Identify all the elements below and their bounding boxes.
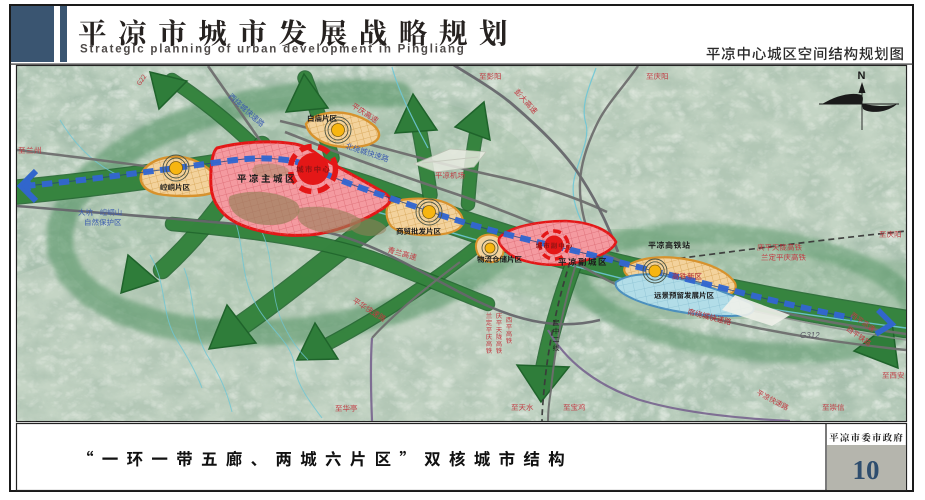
svg-text:10: 10: [853, 455, 880, 485]
svg-text:N: N: [858, 70, 866, 82]
svg-text:G312: G312: [800, 331, 820, 340]
svg-text:Strategic planning of urban de: Strategic planning of urban development …: [80, 44, 466, 56]
